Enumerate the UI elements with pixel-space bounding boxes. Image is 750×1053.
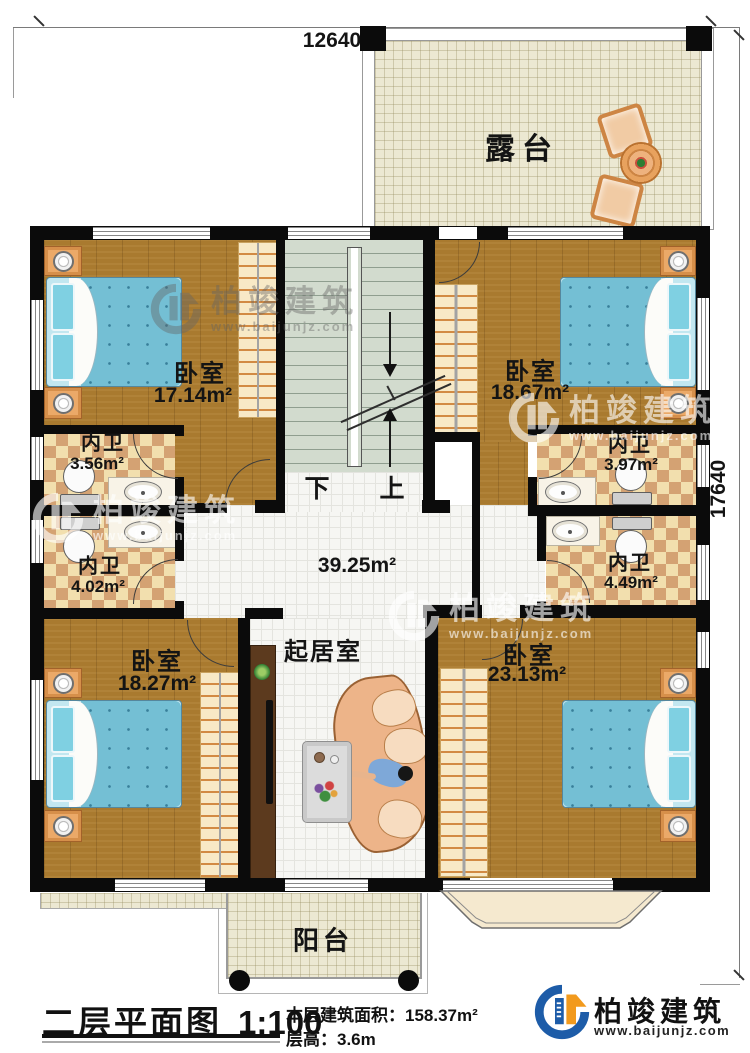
room-area: 18.67m² xyxy=(491,381,569,405)
dimension-tick xyxy=(33,15,44,26)
room-label-bath: 内卫 xyxy=(608,429,652,458)
wall-segment xyxy=(528,477,537,505)
arrow-down-icon xyxy=(383,364,397,377)
bay-window xyxy=(438,890,664,932)
stair-down-label: 下 xyxy=(304,469,329,505)
window xyxy=(115,879,205,891)
person-head xyxy=(398,766,413,781)
lamp-icon xyxy=(668,393,689,414)
room-area: 4.02m² xyxy=(71,577,125,597)
cup xyxy=(314,752,325,763)
nightstand xyxy=(44,387,82,419)
nightstand xyxy=(660,246,696,276)
wall-segment xyxy=(472,442,480,608)
brand-url: www.baijunjz.com xyxy=(594,1023,730,1038)
pillow xyxy=(51,283,75,330)
nightstand xyxy=(44,246,82,276)
brand-logo-icon xyxy=(534,984,590,1040)
window xyxy=(93,227,210,239)
floor-area-info: 本层建筑面积：158.37m² xyxy=(286,1001,478,1026)
stair-up-label: 上 xyxy=(379,469,404,505)
room-label-terrace: 露台 xyxy=(485,124,559,168)
lamp-icon xyxy=(53,816,74,837)
plant xyxy=(254,664,270,680)
lamp-icon xyxy=(668,673,689,694)
wall-segment xyxy=(528,425,537,436)
flowers xyxy=(310,778,340,804)
sink xyxy=(124,521,162,543)
wardrobe xyxy=(434,284,478,442)
dimension-height-label: 17640 xyxy=(707,460,731,518)
balcony-column xyxy=(229,970,250,991)
lamp-icon xyxy=(53,393,74,414)
pillow xyxy=(667,706,691,752)
wall-segment xyxy=(423,605,482,618)
sink xyxy=(124,481,162,503)
window xyxy=(697,545,709,600)
room-area: 23.13m² xyxy=(488,663,566,687)
balcony-column xyxy=(398,970,419,991)
nightstand xyxy=(660,387,696,419)
wardrobe xyxy=(440,668,488,877)
room-area: 3.56m² xyxy=(70,454,124,474)
room-area: 4.49m² xyxy=(604,573,658,593)
pillow xyxy=(667,283,691,330)
window xyxy=(31,520,43,563)
pillow xyxy=(51,755,75,801)
room-label-bath: 内卫 xyxy=(608,547,652,576)
bed xyxy=(46,277,182,387)
door-threshold xyxy=(439,227,477,239)
room-area: 18.27m² xyxy=(118,672,196,696)
window xyxy=(288,227,370,239)
window xyxy=(285,879,368,891)
wall-segment xyxy=(425,618,438,878)
floor-height-label: 层高： xyxy=(286,1030,337,1049)
dimension-line-right xyxy=(739,28,740,978)
wall-segment xyxy=(528,505,696,516)
floor-area-label: 本层建筑面积： xyxy=(286,1006,405,1025)
bed xyxy=(46,700,182,808)
faucet-icon xyxy=(561,491,565,495)
title-underline xyxy=(42,1034,280,1038)
nightstand xyxy=(660,668,696,698)
terrace-table xyxy=(620,142,662,184)
room-label-bath: 内卫 xyxy=(81,427,125,456)
bed xyxy=(560,277,696,387)
wall-segment xyxy=(520,605,696,618)
lamp-icon xyxy=(668,251,689,272)
stair-rail xyxy=(347,247,362,467)
faucet-icon xyxy=(141,491,145,495)
dimension-width-label: 12640 xyxy=(303,29,361,53)
stair-direction-line xyxy=(389,421,391,467)
wall-segment xyxy=(435,432,480,442)
sink xyxy=(552,520,588,542)
dimension-tick xyxy=(705,15,716,26)
nightstand xyxy=(44,668,82,698)
pillow xyxy=(51,333,75,380)
tv xyxy=(266,700,273,804)
floor-plan-canvas: 12640 17640 xyxy=(0,0,750,1053)
window xyxy=(697,445,709,487)
sink xyxy=(545,481,581,503)
floor-height-info: 层高：3.6m xyxy=(286,1025,376,1050)
wall-stair-right xyxy=(423,240,435,513)
title-underline xyxy=(42,1041,280,1043)
stair-direction-line xyxy=(389,312,391,364)
cup xyxy=(330,755,339,764)
lamp-icon xyxy=(53,673,74,694)
room-area: 17.14m² xyxy=(154,384,232,408)
wardrobe xyxy=(200,672,240,878)
stair-landing-floor xyxy=(276,472,430,512)
terrace-column xyxy=(686,26,712,51)
room-label-balcony: 阳台 xyxy=(293,921,353,958)
wall-stair-left xyxy=(276,240,285,513)
wall-segment xyxy=(245,608,283,619)
window xyxy=(31,437,43,480)
dimension-extension-line xyxy=(13,28,14,98)
nightstand xyxy=(44,810,82,842)
toilet-tank xyxy=(60,517,100,530)
room-area: 3.97m² xyxy=(604,455,658,475)
room-label-bath: 内卫 xyxy=(78,550,122,579)
wall-segment xyxy=(537,516,546,561)
lamp-icon xyxy=(53,251,74,272)
window xyxy=(31,300,43,390)
toilet-tank xyxy=(612,517,652,530)
terrace-column xyxy=(360,26,386,51)
roof-eave-strip xyxy=(40,893,230,909)
pillow xyxy=(667,333,691,380)
window xyxy=(697,632,709,668)
wardrobe xyxy=(238,242,278,418)
dimension-extension-line xyxy=(700,984,740,985)
bed xyxy=(562,700,696,808)
wall-exterior-bottom xyxy=(30,878,470,892)
wall-segment xyxy=(44,608,183,619)
floor-area-value: 158.37m² xyxy=(405,1006,478,1025)
hall-area: 39.25m² xyxy=(318,554,396,578)
room-label-living: 起居室 xyxy=(284,632,362,667)
pillow xyxy=(667,755,691,801)
pillow xyxy=(51,706,75,752)
faucet-icon xyxy=(568,530,572,534)
wall-segment xyxy=(183,503,227,513)
nightstand xyxy=(660,810,696,842)
faucet-icon xyxy=(141,531,145,535)
window xyxy=(697,298,709,390)
window xyxy=(31,680,43,780)
wall-segment xyxy=(175,477,184,561)
floor-height-value: 3.6m xyxy=(337,1030,376,1049)
window xyxy=(508,227,623,239)
sofa-cushion xyxy=(384,728,428,764)
toilet-tank xyxy=(612,492,652,505)
wall-segment xyxy=(238,618,250,878)
arrow-up-icon xyxy=(383,408,397,421)
lamp-icon xyxy=(668,816,689,837)
wall-segment xyxy=(44,505,183,516)
